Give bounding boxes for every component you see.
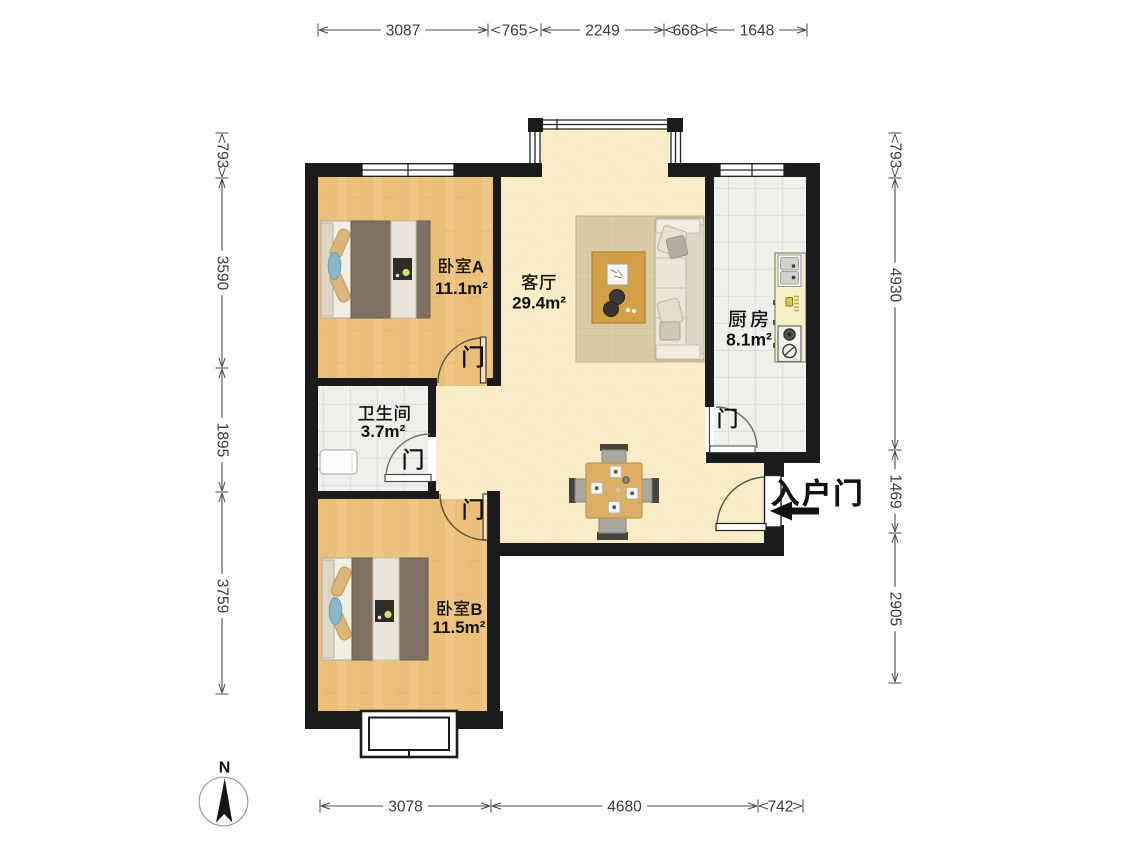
svg-text:793: 793 [214, 143, 231, 169]
svg-text:3590: 3590 [214, 256, 231, 291]
svg-text:B: B [471, 601, 483, 619]
svg-text:3087: 3087 [386, 23, 420, 40]
svg-text:1469: 1469 [887, 474, 904, 508]
svg-text:765: 765 [502, 23, 528, 40]
svg-text:4930: 4930 [887, 268, 904, 303]
svg-text:A: A [472, 259, 484, 277]
svg-text:742: 742 [768, 799, 794, 816]
svg-text:N: N [219, 760, 231, 777]
svg-text:2249: 2249 [585, 23, 619, 40]
svg-text:668: 668 [673, 23, 699, 40]
svg-text:2905: 2905 [887, 592, 904, 626]
svg-text:3078: 3078 [388, 799, 422, 816]
svg-text:3759: 3759 [214, 579, 231, 613]
svg-text:1648: 1648 [740, 23, 774, 40]
svg-text:4680: 4680 [607, 799, 642, 816]
svg-text:3.7m²: 3.7m² [361, 422, 406, 441]
svg-text:29.4m²: 29.4m² [512, 293, 566, 312]
svg-text:793: 793 [887, 143, 904, 169]
svg-text:11.1m²: 11.1m² [435, 279, 488, 298]
svg-text:8.1m²: 8.1m² [726, 330, 772, 350]
svg-text:11.5m²: 11.5m² [433, 618, 486, 637]
svg-text:1895: 1895 [214, 423, 231, 457]
